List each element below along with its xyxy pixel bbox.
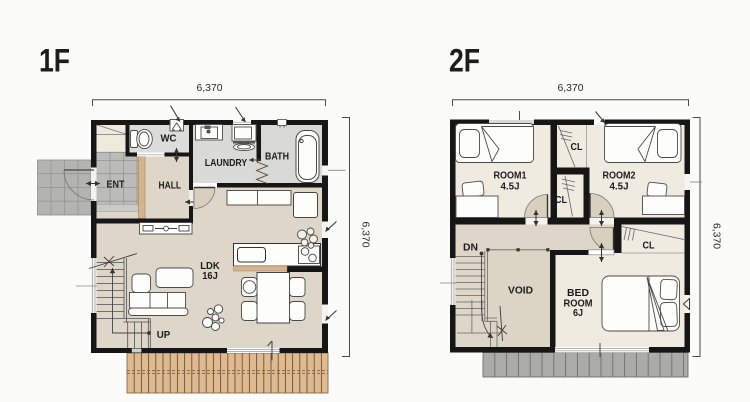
svg-text:6J: 6J [573, 307, 583, 319]
svg-text:4.5J: 4.5J [610, 181, 629, 193]
svg-text:ENT: ENT [107, 178, 126, 190]
svg-text:WC: WC [161, 133, 177, 145]
svg-text:UP: UP [157, 329, 171, 341]
svg-text:2F: 2F [449, 43, 480, 79]
svg-text:6,370: 6,370 [558, 82, 584, 94]
svg-text:6,370: 6,370 [197, 82, 223, 94]
svg-text:CL: CL [643, 240, 655, 252]
svg-text:LAUNDRY: LAUNDRY [205, 157, 248, 169]
svg-text:4.5J: 4.5J [501, 181, 520, 193]
svg-text:HALL: HALL [159, 180, 182, 192]
svg-text:CL: CL [555, 194, 567, 206]
svg-text:1F: 1F [39, 43, 70, 79]
svg-text:DN: DN [463, 242, 478, 254]
svg-text:CL: CL [571, 141, 583, 153]
svg-text:6,370: 6,370 [711, 223, 723, 249]
svg-text:6,370: 6,370 [360, 222, 372, 248]
svg-text:VOID: VOID [508, 285, 533, 297]
svg-text:BATH: BATH [265, 151, 289, 163]
svg-text:16J: 16J [202, 270, 218, 282]
